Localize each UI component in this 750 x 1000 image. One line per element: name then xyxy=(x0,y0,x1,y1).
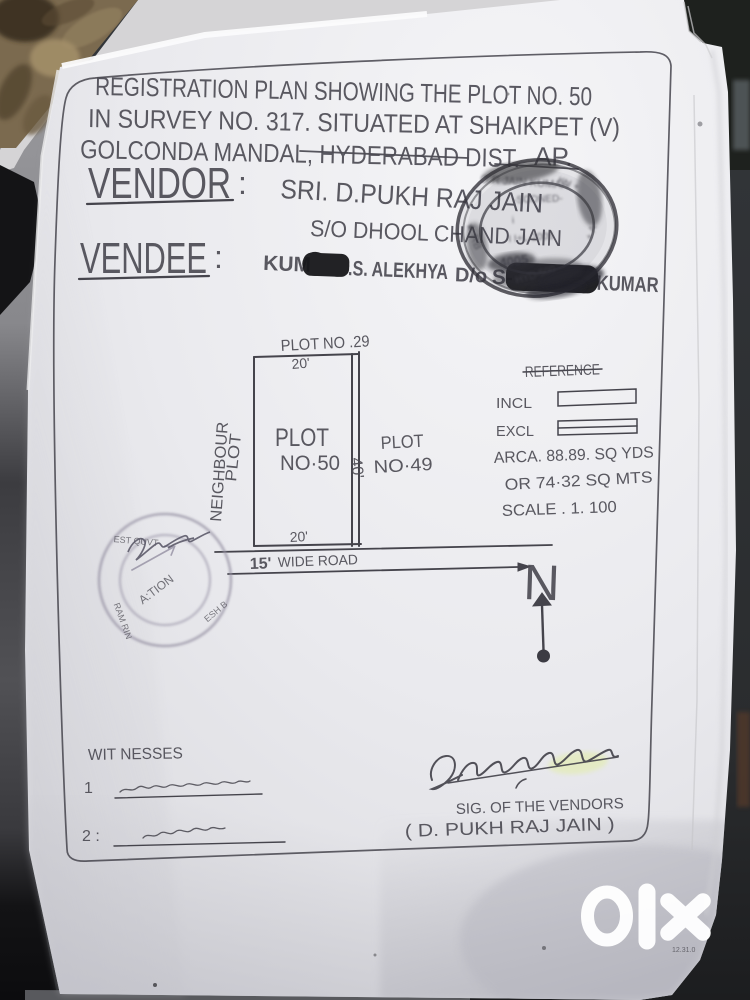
svg-text:REFERENCE: REFERENCE xyxy=(525,361,601,381)
svg-text:2 :: 2 : xyxy=(82,828,100,845)
svg-text:.S. ALEKHYA: .S. ALEKHYA xyxy=(348,257,449,284)
svg-text:WIDE ROAD: WIDE ROAD xyxy=(278,551,359,570)
svg-text:15': 15' xyxy=(250,555,272,573)
svg-text:20': 20' xyxy=(291,354,311,372)
svg-text:EXCL: EXCL xyxy=(496,423,534,440)
svg-text:12.31.0: 12.31.0 xyxy=(672,947,695,954)
svg-text:NO·50: NO·50 xyxy=(280,452,340,475)
svg-text:PLOT: PLOT xyxy=(275,424,329,452)
svg-text:INCL: INCL xyxy=(496,395,532,412)
svg-text::: : xyxy=(238,165,247,201)
svg-text:20': 20' xyxy=(289,528,308,545)
svg-text:VENDOR: VENDOR xyxy=(88,159,231,208)
svg-text:1: 1 xyxy=(84,780,93,797)
svg-text::: : xyxy=(214,239,223,275)
svg-text:KUMAR: KUMAR xyxy=(596,272,659,297)
svg-text:40': 40' xyxy=(347,457,366,480)
svg-text:WIT NESSES: WIT NESSES xyxy=(88,745,183,764)
svg-text:VENDEE: VENDEE xyxy=(80,234,207,283)
svg-text:NO·49: NO·49 xyxy=(373,454,433,477)
svg-text:PLOT: PLOT xyxy=(380,431,424,453)
svg-text:N: N xyxy=(523,554,561,611)
